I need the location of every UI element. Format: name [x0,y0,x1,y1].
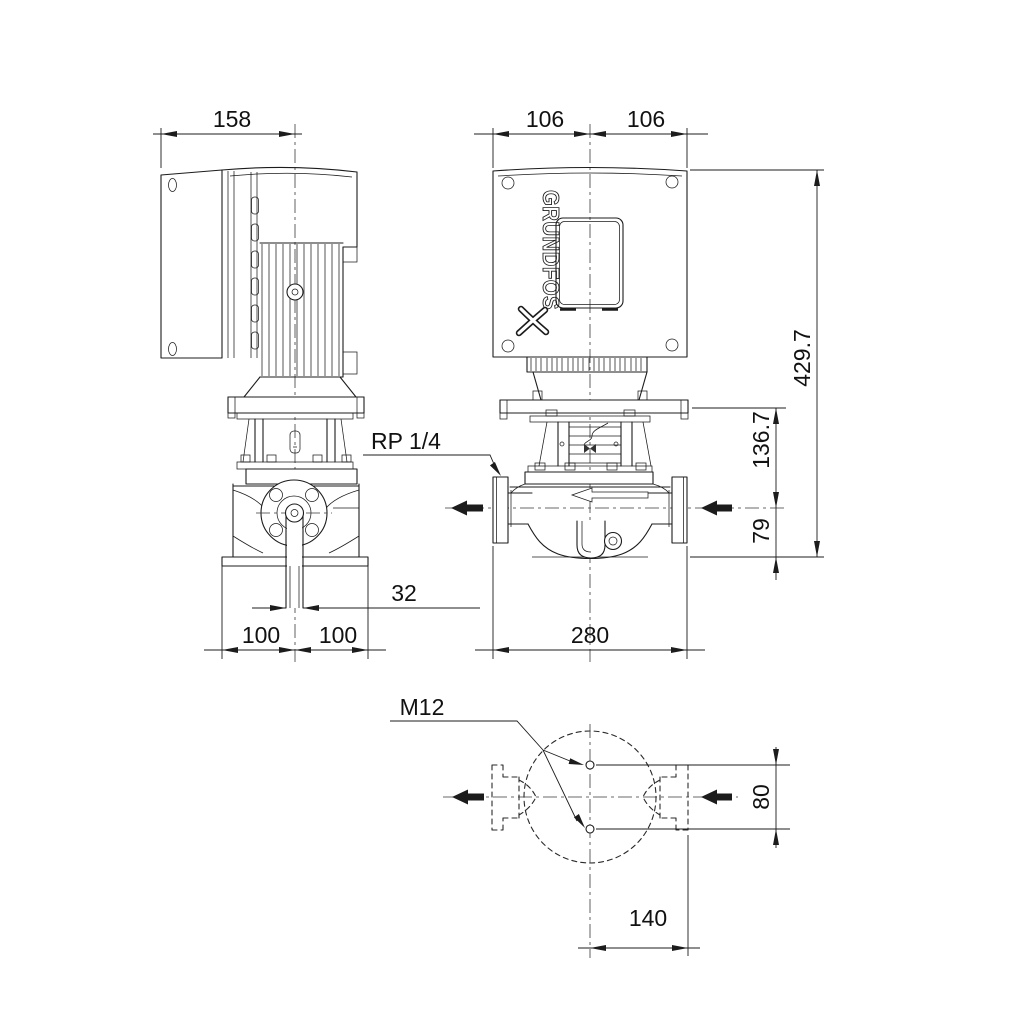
front-left-port-flange [493,477,508,543]
dim-100r-label: 100 [319,622,357,648]
dim-100l-label: 100 [242,622,280,648]
dim-80-label: 80 [748,784,774,810]
top-m12-hole-lower [586,825,594,833]
dim-140-label: 140 [629,905,667,931]
drain-boss [577,521,605,558]
dim-106l-label: 106 [526,106,564,132]
dim-280-label: 280 [571,622,609,648]
side-motor-cap [287,284,303,300]
dim-158-label: 158 [213,106,251,132]
brand-wordmark: GRUNDFOS [538,190,564,310]
drain-plug [605,533,622,550]
front-pump-flange [525,472,653,484]
front-right-port-flange [672,477,687,543]
front-motor-flange [500,400,688,413]
drawing-canvas: 158 32 100 100 GRUNDFOS [0,0,1024,1024]
paper-background [0,0,1024,1024]
technical-drawing: 158 32 100 100 GRUNDFOS [0,0,1024,1024]
top-m12-hole-upper [586,761,594,769]
m12-label: M12 [400,694,445,720]
dim-1367-label: 136.7 [748,411,774,469]
dim-4297-label: 429.7 [789,329,815,387]
dim-106r-label: 106 [627,106,665,132]
rp14-label: RP 1/4 [371,428,441,454]
dim-79-label: 79 [748,518,774,544]
dim-32-label: 32 [391,580,417,606]
